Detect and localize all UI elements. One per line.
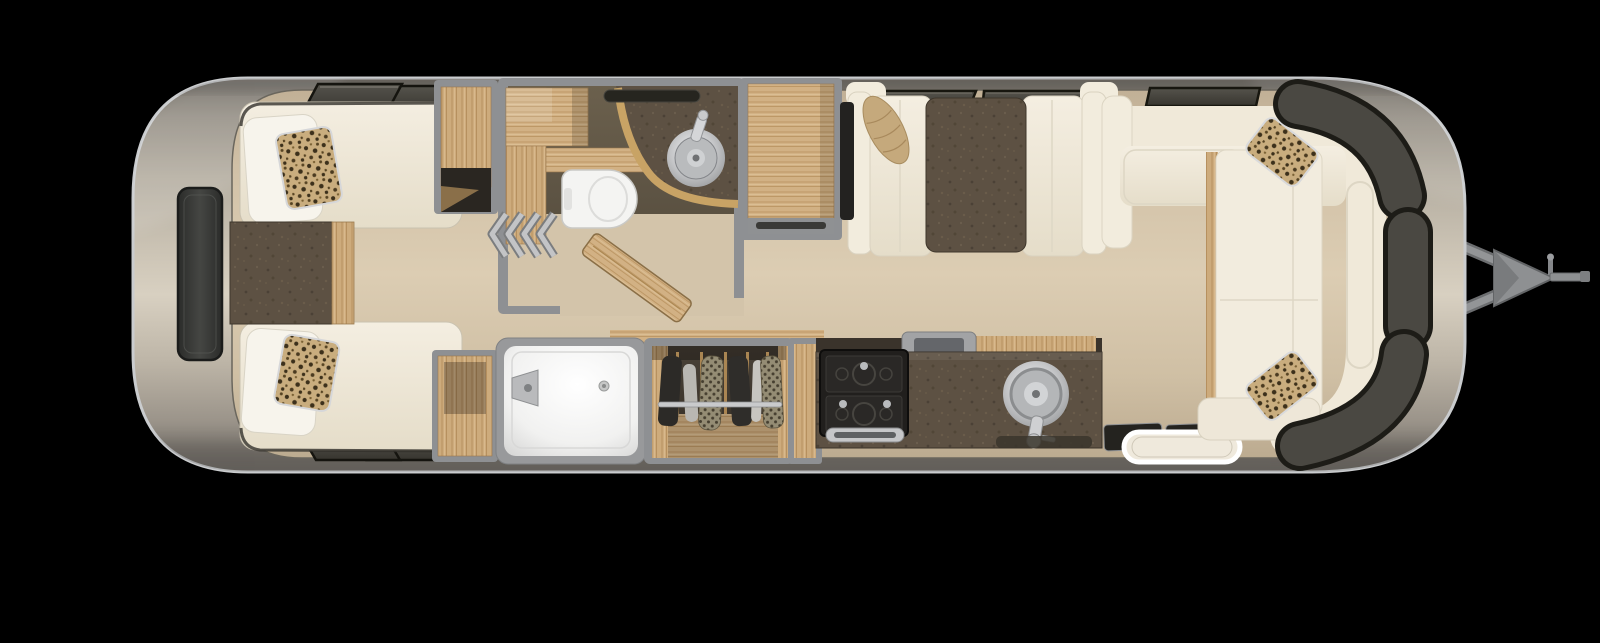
coupler-tongue — [1550, 273, 1582, 281]
small-wood-cabinet — [432, 350, 498, 462]
leopard-pillow-upper — [275, 126, 343, 211]
hitch-assembly — [1452, 242, 1590, 314]
lounge-window-top — [1146, 88, 1260, 106]
trailer-floorplan-render — [0, 0, 1600, 643]
nightstand — [230, 222, 354, 324]
twin-bed-upper — [240, 102, 462, 228]
toilet — [562, 170, 637, 228]
two-burner-cooktop — [820, 350, 908, 442]
floorplan-canvas — [0, 0, 1600, 643]
burner-knob — [860, 362, 868, 370]
dinette-table — [926, 98, 1026, 252]
hanging-clothes — [658, 355, 784, 430]
roof-vent — [604, 90, 700, 102]
tall-wardrobe-cabinet — [740, 78, 842, 240]
twin-bed-lower — [240, 322, 462, 451]
side-tv-panel — [840, 102, 854, 220]
leopard-pillow-lower — [273, 334, 340, 413]
bathroom — [492, 78, 744, 324]
galley-kitchen — [816, 332, 1102, 451]
burner-knob — [839, 400, 847, 408]
kitchen-floor-mat — [996, 436, 1092, 448]
rear-wall-tv — [178, 188, 222, 360]
wood-dresser — [434, 80, 498, 214]
bench-seat-right — [1022, 96, 1084, 256]
burner-knob — [883, 400, 891, 408]
lower-units — [432, 330, 824, 464]
closet-rod — [658, 402, 782, 407]
bath-counter-strip — [546, 148, 646, 172]
walk-in-shower — [496, 338, 646, 464]
dinette — [840, 82, 1118, 256]
hanging-closet — [644, 338, 794, 464]
